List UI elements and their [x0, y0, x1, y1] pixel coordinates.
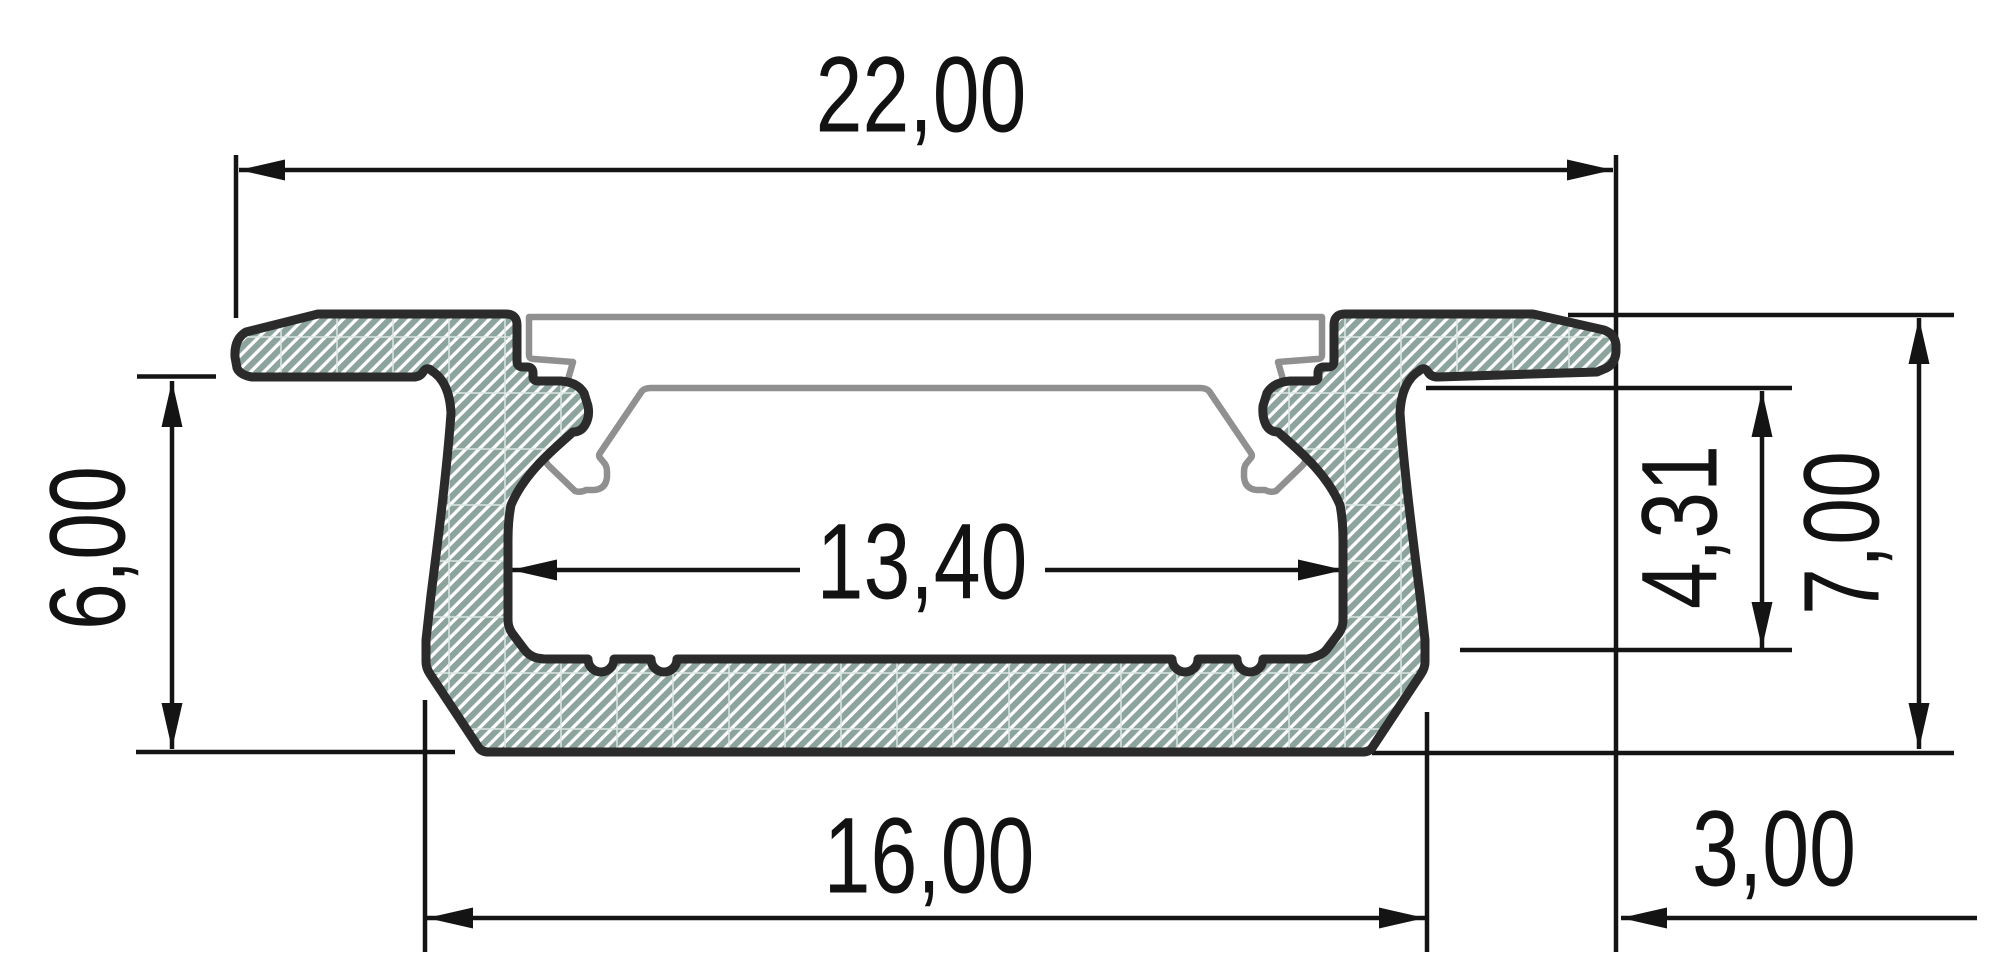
svg-text:16,00: 16,00 — [824, 794, 1035, 916]
svg-text:3,00: 3,00 — [1692, 787, 1856, 909]
svg-text:13,40: 13,40 — [817, 500, 1028, 622]
svg-text:7,00: 7,00 — [1780, 451, 1902, 615]
svg-text:4,31: 4,31 — [1618, 445, 1740, 609]
svg-text:22,00: 22,00 — [816, 33, 1027, 155]
svg-text:6,00: 6,00 — [26, 466, 148, 630]
